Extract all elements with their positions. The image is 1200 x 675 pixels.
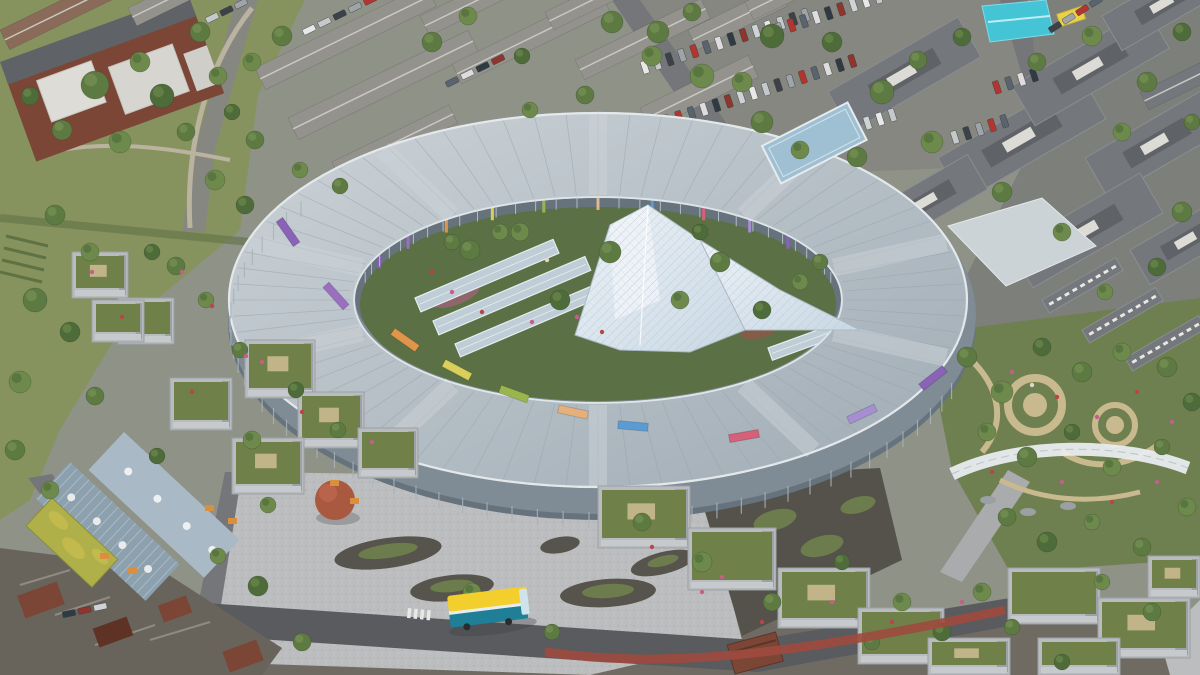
tree-highlight [980,425,988,433]
tree-highlight [425,34,434,43]
tree-canopy [459,7,477,25]
tree-highlight [238,198,246,206]
tree-canopy [332,178,348,194]
tree-canopy [973,583,991,601]
tree-canopy [293,633,311,651]
tree [23,288,47,312]
tree-canopy [992,182,1012,202]
block-patio [807,585,835,601]
block-patio [255,454,277,469]
tree-canopy [81,243,99,261]
flower-patch [1155,480,1159,484]
tree-canopy [847,147,867,167]
tree-canopy [205,170,225,190]
tree-canopy [5,440,25,460]
tree-highlight [63,324,72,333]
flower-patch [120,315,124,319]
tree-canopy [647,21,669,43]
tree-canopy [1113,123,1131,141]
tree-highlight [602,243,612,253]
flower-patch [450,290,454,294]
tree-highlight [251,578,260,587]
tree-canopy [522,102,538,118]
tree-highlight [1145,605,1153,613]
tree-highlight [275,28,284,37]
tree-canopy [1054,654,1070,670]
tree-canopy [1148,258,1166,276]
orange-window [228,518,237,524]
tree [243,431,261,449]
tree-highlight [1086,516,1093,523]
tree-canopy [909,51,927,69]
tree [692,224,708,240]
red-tree-highlight [319,484,337,502]
tree [81,243,99,261]
garden-block [92,300,144,342]
tree-highlight [825,34,834,43]
tree-canopy [1113,343,1131,361]
tree [647,21,669,43]
tree-highlight [211,69,219,77]
tree-highlight [553,292,562,301]
orange-window [350,498,359,504]
tree [1053,223,1071,241]
tree [1178,498,1196,516]
tree-canopy [633,513,651,531]
block-patio [319,408,339,423]
flower-patch [480,310,484,314]
tree [292,162,308,178]
tree-highlight [262,499,269,506]
tree [288,382,304,398]
tree-canopy [292,162,308,178]
flower-patch [700,590,704,594]
tree [60,322,80,342]
tree-highlight [55,122,64,131]
tree-highlight [516,50,523,57]
garden-patio [1023,393,1047,417]
tree-highlight [1040,534,1049,543]
tree-highlight [1115,125,1123,133]
aerial-rendering [0,0,1200,675]
tree-canopy [52,120,72,140]
tree-canopy [601,11,623,33]
tree [710,252,730,272]
tree-canopy [893,593,911,611]
tree-highlight [1156,441,1163,448]
tree-highlight [1000,510,1008,518]
tree-highlight [463,242,472,251]
tree [109,131,131,153]
tree-canopy [1028,53,1046,71]
tree-canopy [209,67,227,85]
block-balcony [75,290,125,296]
tree-canopy [23,288,47,312]
tree [460,240,480,260]
tree-highlight [755,303,763,311]
flower-patch [960,600,964,604]
tree-highlight [814,256,821,263]
block-balcony [1151,590,1197,596]
tree [633,513,651,531]
tree-canopy [41,481,59,499]
tree-highlight [83,245,91,253]
tree [834,554,850,570]
flower-patch [830,600,834,604]
tree-canopy [86,387,104,405]
flower-patch [210,304,214,308]
tree [822,32,842,52]
garden-patio-2 [1106,416,1124,434]
tree [909,51,927,69]
tree [1072,362,1092,382]
tree-canopy [190,22,210,42]
block-roof-garden [174,382,228,420]
tree-highlight [836,556,843,563]
tree-highlight [1175,204,1184,213]
tree-canopy [1072,362,1092,382]
tree-canopy [210,548,226,564]
tree [332,178,348,194]
flower-patch [1010,370,1014,374]
tree-canopy [957,347,977,367]
tree-highlight [1140,74,1149,83]
tree-highlight [650,23,660,33]
tree-highlight [1175,25,1183,33]
tree-canopy [460,240,480,260]
tree-canopy [550,290,570,310]
tree-canopy [991,381,1013,403]
tree-highlight [26,290,37,301]
tree [998,508,1016,526]
tree [150,84,174,108]
tree-highlight [295,635,303,643]
tree [149,448,165,464]
block-balcony [1011,616,1097,622]
tree-canopy [422,32,442,52]
tree-canopy [1094,574,1110,590]
tree [444,234,460,250]
tree [205,170,225,190]
garden-block [358,428,418,478]
tree [544,624,560,640]
block-balcony [781,620,867,626]
tree-highlight [494,226,501,233]
tree-highlight [673,293,681,301]
tree [1103,458,1121,476]
block-balcony [691,582,773,588]
tree-canopy [1157,357,1177,377]
tree-highlight [294,164,301,171]
block-roof-garden [1012,572,1096,614]
tree-highlight [763,26,774,37]
tree-canopy [1084,514,1100,530]
tree-canopy [1184,114,1200,130]
tree-canopy [330,422,346,438]
tree-canopy [978,423,996,441]
tree [190,22,210,42]
tree-canopy [1037,532,1057,552]
flower-patch [190,390,194,394]
block-balcony [361,470,415,476]
tree-highlight [1096,576,1103,583]
flower-patch [370,440,374,444]
garden-block [1008,568,1100,624]
tree [1033,338,1051,356]
tree-canopy [792,274,808,290]
flower-patch [1135,390,1139,394]
tree [41,481,59,499]
tree-highlight [1035,340,1043,348]
tree-highlight [290,384,297,391]
block-balcony [1041,667,1117,673]
tree-canopy [753,301,771,319]
tree [957,347,977,367]
tree-highlight [604,13,614,23]
tree [870,80,894,104]
tree-highlight [1180,500,1188,508]
tree-canopy [514,48,530,64]
tree-highlight [911,53,919,61]
tree-highlight [133,54,142,63]
tree-highlight [995,184,1004,193]
orange-window [128,568,137,574]
tree-canopy [1064,424,1080,440]
tree [921,131,943,153]
tree-canopy [21,87,39,105]
flower-patch [244,354,248,358]
tree-canopy [109,131,131,153]
tree-highlight [895,595,903,603]
tree [177,123,195,141]
tree [812,254,828,270]
tree-canopy [599,241,621,263]
tree-highlight [12,373,22,383]
tree-highlight [465,585,473,593]
block-roof-garden [1042,642,1116,665]
tree [459,7,477,25]
tree-highlight [693,66,704,77]
tree-canopy [236,196,254,214]
tree-canopy [953,28,971,46]
tree-highlight [193,24,202,33]
tree-highlight [446,236,453,243]
tree-canopy [760,24,784,48]
tree-canopy [791,141,809,159]
tree [522,102,538,118]
tree-canopy [177,123,195,141]
tree-highlight [245,55,253,63]
tree-highlight [578,88,586,96]
tree-highlight [1115,345,1123,353]
tree [1133,538,1151,556]
tree [760,24,784,48]
tree-canopy [130,52,150,72]
tree-highlight [513,225,521,233]
tree [52,120,72,140]
tree-highlight [461,9,469,17]
garden-block [72,252,128,298]
tree-highlight [1105,460,1113,468]
tree-highlight [685,5,693,13]
tree [45,205,65,225]
tree [671,291,689,309]
tree [683,3,701,21]
block-patio [954,648,979,658]
tree-highlight [334,180,341,187]
tree-highlight [873,82,884,93]
tree-highlight [234,344,241,351]
tree-highlight [1030,55,1038,63]
tree-highlight [765,595,773,603]
tree-canopy [1178,498,1196,516]
tree [1173,23,1191,41]
tree-canopy [732,72,752,92]
block-patio [1165,568,1181,579]
tree [248,576,268,596]
tree-highlight [1055,225,1063,233]
tree-highlight [1099,286,1106,293]
tree-highlight [1085,28,1094,37]
tree-canopy [1053,223,1071,241]
garden-block [778,568,870,628]
block-balcony [601,540,687,546]
tree-highlight [754,113,764,123]
garden-table [980,496,996,504]
block-roof-garden [362,432,414,468]
tree [246,131,264,149]
tree [272,26,292,46]
tree-canopy [149,448,165,464]
tree-canopy [1133,538,1151,556]
tree-highlight [1135,540,1143,548]
tree-canopy [576,86,594,104]
tree [243,53,261,71]
tree [732,72,752,92]
tree [209,67,227,85]
tree [1172,202,1192,222]
block-patio [267,356,288,371]
tree [210,548,226,564]
tree [293,633,311,651]
flower-patch [260,360,264,364]
tree [1082,26,1102,46]
tree-highlight [332,424,339,431]
garden-block [245,340,315,398]
tree [599,241,621,263]
tree-canopy [642,46,662,66]
tree [1154,439,1170,455]
tree [1113,123,1131,141]
tree [992,182,1012,202]
tree [511,223,529,241]
tree [1148,258,1166,276]
tree-canopy [1137,72,1157,92]
tree-highlight [43,483,51,491]
tree [144,244,160,260]
tree-highlight [645,48,654,57]
tree [1183,393,1200,411]
tree [81,71,109,99]
tree-canopy [690,64,714,88]
tree [21,87,39,105]
tree [422,32,442,52]
tree-highlight [793,143,801,151]
tree-canopy [81,71,109,99]
flower-patch [1095,415,1099,419]
tree [9,371,31,393]
tree-canopy [1143,603,1161,621]
tree [690,64,714,88]
block-balcony [301,440,361,446]
tree-canopy [692,552,712,572]
tree-highlight [8,442,17,451]
flower-patch [990,470,994,474]
tree [130,52,150,72]
tree [576,86,594,104]
flower-patch [650,545,654,549]
tree-canopy [1173,23,1191,41]
tree-canopy [60,322,80,342]
garden-block [928,638,1010,675]
tree [1184,114,1200,130]
tree-canopy [1017,447,1037,467]
tree [973,583,991,601]
tree-canopy [260,497,276,513]
tree-canopy [822,32,842,52]
tree-canopy [812,254,828,270]
flower-patch [1030,383,1034,387]
tree-canopy [144,244,160,260]
block-balcony [931,667,1007,673]
tree-highlight [850,149,859,158]
flower-patch [430,270,434,274]
flower-patch [530,320,534,324]
orange-window [100,553,109,559]
tree-canopy [1103,458,1121,476]
tree-canopy [9,371,31,393]
tree [1054,654,1070,670]
garden-block [170,378,232,430]
aerial-rendering-stage [0,0,1200,675]
tree [1004,619,1020,635]
tree [236,196,254,214]
tree-highlight [153,86,164,97]
tree-highlight [1160,359,1169,368]
tree-canopy [870,80,894,104]
flower-patch [575,315,579,319]
tree-highlight [112,133,122,143]
tree-highlight [1020,449,1029,458]
block-balcony [95,334,141,340]
tree-canopy [683,3,701,21]
tree [978,423,996,441]
tree-canopy [921,131,943,153]
tree [753,301,771,319]
tree-highlight [955,30,963,38]
tree [1113,343,1131,361]
tree-canopy [671,291,689,309]
tree-canopy [272,26,292,46]
tree [5,440,25,460]
tree [692,552,712,572]
tree-canopy [763,593,781,611]
tree [492,224,508,240]
tree-highlight [23,89,31,97]
flower-patch [545,258,549,262]
tree-highlight [994,383,1004,393]
tree [224,104,240,120]
